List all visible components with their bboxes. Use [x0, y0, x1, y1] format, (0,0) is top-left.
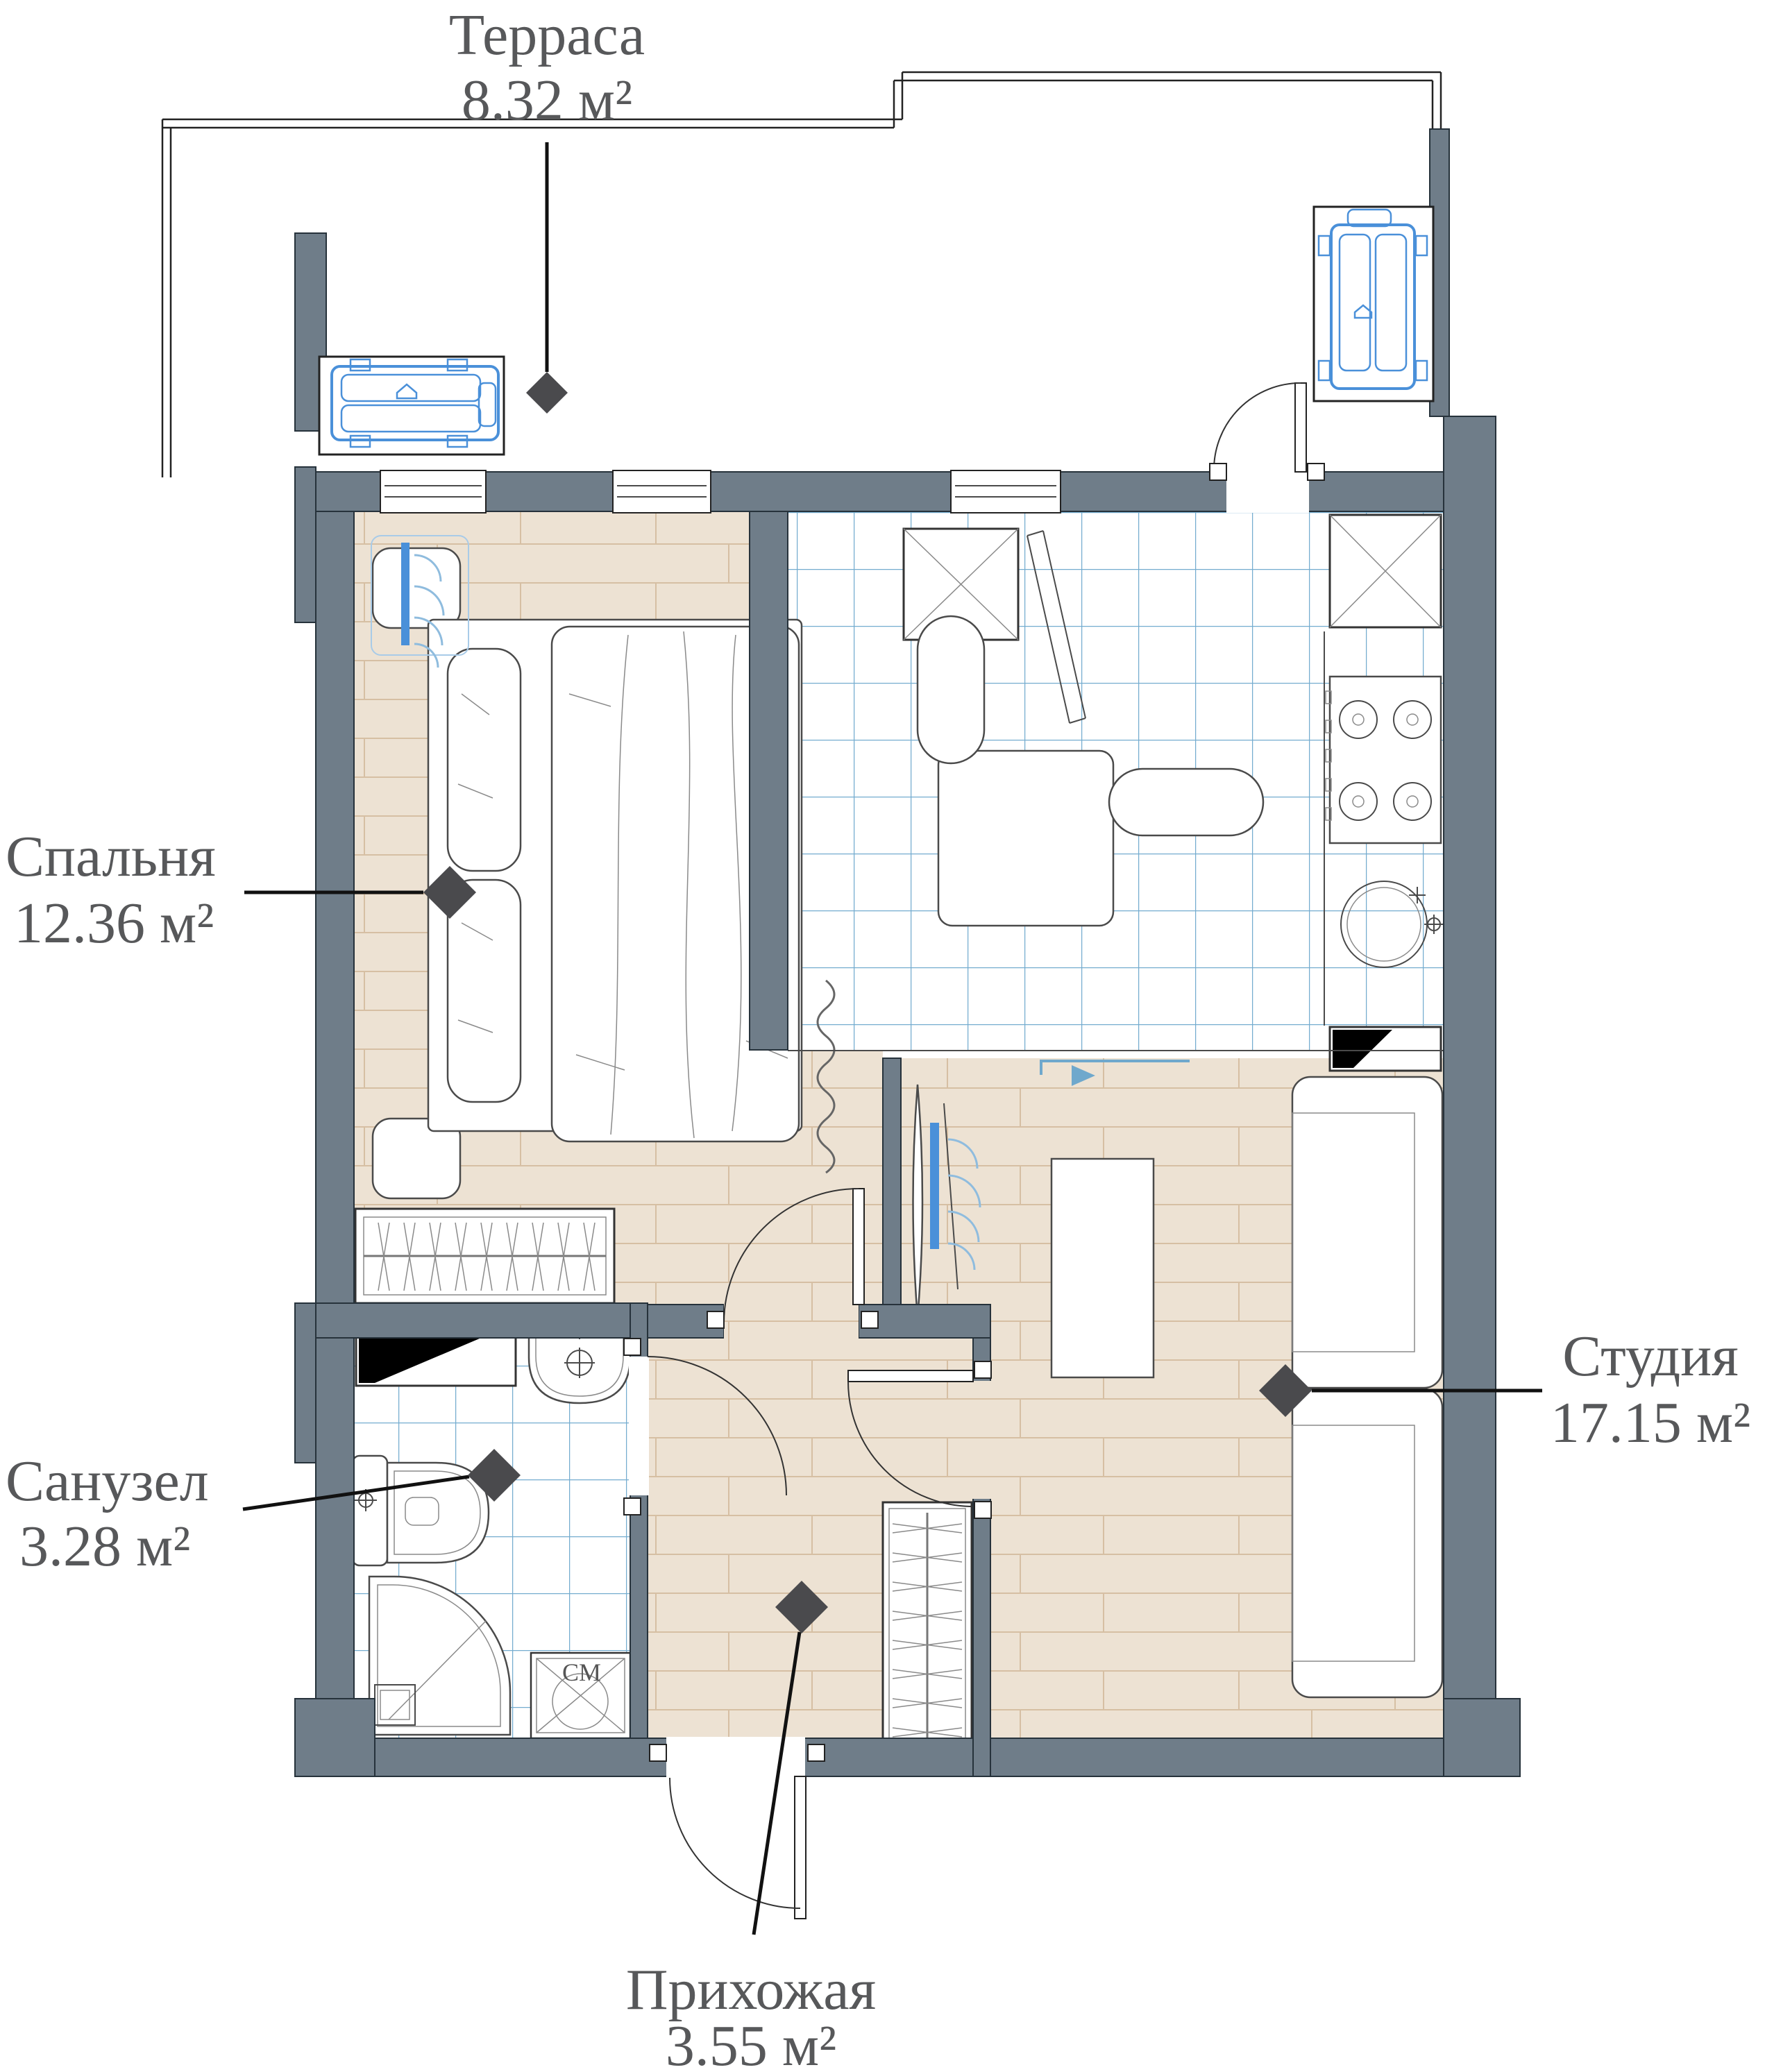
wall-bathroom-top [316, 1303, 648, 1338]
ac-unit-left [319, 357, 504, 455]
washer-label: СМ [562, 1658, 601, 1686]
room-name: Санузел [6, 1449, 209, 1513]
radiator-bar [401, 543, 409, 645]
chair [918, 616, 984, 763]
bedroom-door-opening [724, 1303, 859, 1339]
wall-segment [295, 467, 316, 622]
vent-shaft-right [1330, 515, 1441, 627]
terrace-door-opening [1226, 470, 1309, 513]
pillow [448, 649, 521, 871]
ac-unit-right [1314, 207, 1433, 401]
room-area: 3.28 м² [19, 1514, 190, 1579]
room-name: Студия [1562, 1324, 1739, 1389]
bathroom-door-opening [629, 1357, 649, 1495]
window-kitchen [951, 470, 1061, 513]
stove [1326, 677, 1441, 843]
wall-segment [1444, 416, 1496, 1776]
pillow [448, 880, 521, 1102]
toilet [353, 1456, 489, 1565]
hallway-closet [883, 1502, 972, 1763]
chair [1109, 769, 1263, 835]
room-name: Терраса [449, 3, 645, 67]
wall-segment [1444, 1699, 1520, 1776]
bed [428, 620, 802, 1141]
washing-machine: СМ [531, 1653, 630, 1738]
partition-nook-studio [883, 1058, 901, 1338]
window-bedroom [380, 470, 486, 513]
room-name: Спальня [6, 824, 216, 889]
wall-segment [375, 1738, 1520, 1776]
window-bedroom-2 [613, 470, 711, 513]
room-area: 17.15 м² [1551, 1391, 1750, 1455]
wall-segment [295, 1303, 316, 1463]
wall-segment [295, 1699, 375, 1776]
nightstand-top [373, 548, 460, 628]
sofa-section [1292, 1077, 1442, 1388]
room-area: 8.32 м² [462, 68, 632, 133]
room-area: 3.55 м² [666, 2014, 836, 2072]
room-name: Прихожая [626, 1958, 876, 2022]
floor-plan: СМ [0, 0, 1765, 2072]
room-area: 12.36 м² [14, 891, 214, 956]
partition-bedroom-kitchen [750, 511, 788, 1050]
sofa-section [1292, 1389, 1442, 1697]
coffee-table [1052, 1159, 1154, 1377]
vent-duct-kitchen [1330, 1027, 1441, 1071]
studio-door-opening [972, 1381, 992, 1499]
dining-table [938, 751, 1113, 926]
wardrobe [355, 1209, 614, 1303]
wall-segment [316, 511, 354, 1776]
